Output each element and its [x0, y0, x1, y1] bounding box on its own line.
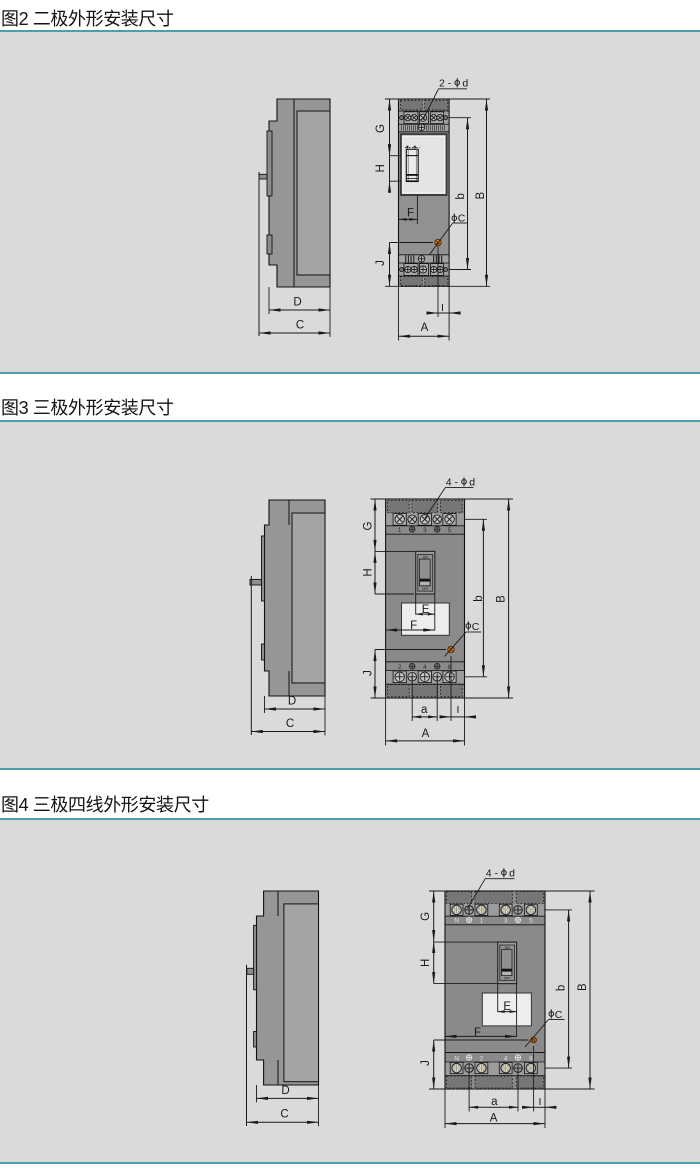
svg-text:b: b [473, 595, 485, 601]
svg-text:4: 4 [504, 1055, 508, 1062]
svg-text:C: C [472, 621, 480, 633]
svg-text:I: I [457, 704, 460, 716]
svg-text:d: d [509, 867, 515, 879]
svg-text:3: 3 [504, 917, 508, 924]
svg-text:F: F [474, 1027, 481, 1039]
svg-text:E: E [503, 1001, 511, 1013]
svg-text:4 -: 4 - [446, 476, 459, 488]
svg-text:E: E [422, 604, 430, 616]
svg-text:I: I [441, 302, 444, 314]
svg-text:4 -: 4 - [486, 867, 499, 879]
svg-text:B: B [496, 595, 508, 603]
svg-text:4: 4 [423, 664, 427, 671]
svg-text:2 -: 2 - [439, 77, 452, 89]
svg-text:6: 6 [529, 1055, 533, 1062]
svg-text:A: A [422, 728, 430, 740]
svg-text:N: N [454, 917, 459, 924]
svg-text:J: J [375, 260, 387, 266]
svg-text:C: C [555, 1009, 563, 1021]
svg-text:C: C [296, 320, 304, 332]
svg-text:5: 5 [448, 527, 452, 534]
svg-text:G: G [420, 912, 432, 921]
svg-text:I: I [539, 1096, 542, 1108]
svg-text:d: d [462, 77, 468, 89]
svg-text:D: D [288, 696, 296, 708]
svg-text:J: J [420, 1060, 432, 1066]
svg-text:b: b [555, 985, 567, 991]
svg-text:C: C [280, 1109, 288, 1121]
svg-text:A: A [421, 322, 429, 334]
svg-text:3: 3 [423, 527, 427, 534]
svg-text:G: G [363, 521, 375, 530]
svg-text:F: F [410, 620, 417, 632]
svg-text:d: d [469, 476, 475, 488]
svg-text:2: 2 [480, 1055, 484, 1062]
svg-text:H: H [420, 959, 432, 967]
svg-text:a: a [491, 1096, 498, 1108]
svg-text:N: N [454, 1055, 459, 1062]
svg-text:D: D [293, 297, 301, 309]
svg-text:5: 5 [529, 917, 533, 924]
svg-text:A: A [490, 1113, 498, 1125]
svg-text:a: a [421, 704, 428, 716]
svg-text:b: b [455, 193, 467, 199]
svg-text:1: 1 [480, 917, 484, 924]
svg-text:OFF: OFF [504, 977, 511, 981]
svg-text:B: B [577, 983, 589, 991]
svg-text:J: J [363, 670, 375, 676]
svg-text:H: H [363, 568, 375, 576]
svg-text:D: D [281, 1085, 289, 1097]
svg-text:2: 2 [398, 664, 402, 671]
svg-text:H: H [375, 164, 387, 172]
svg-text:C: C [286, 718, 294, 730]
svg-text:C: C [458, 213, 466, 225]
svg-text:G: G [375, 124, 387, 133]
svg-text:1: 1 [398, 527, 402, 534]
svg-text:F: F [407, 208, 414, 220]
svg-text:B: B [475, 191, 487, 199]
svg-text:OFF: OFF [422, 587, 429, 591]
